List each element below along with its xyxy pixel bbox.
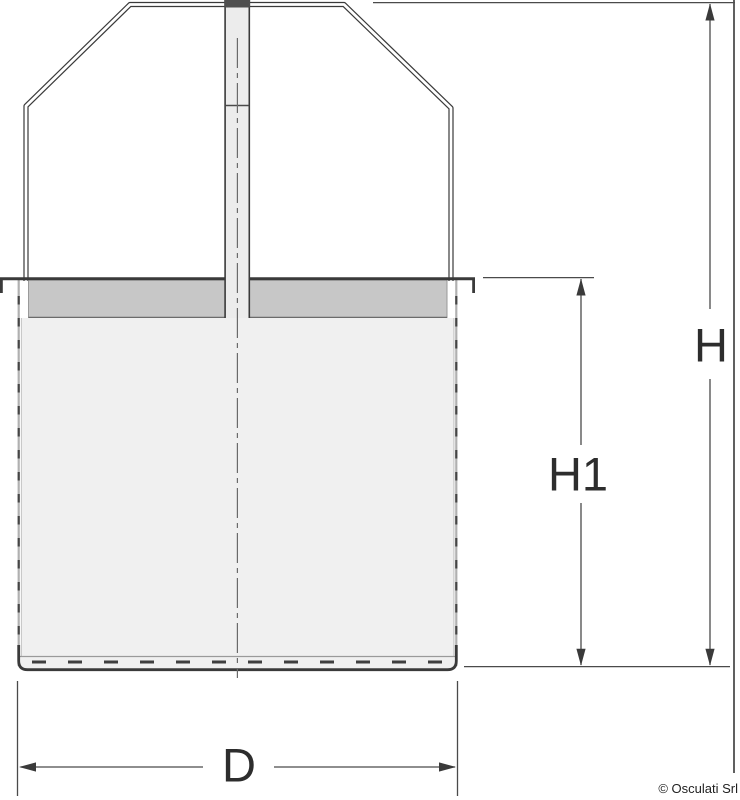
technical-drawing-chimney-cap: H H1 D © Osculati Srl bbox=[0, 0, 740, 800]
dimension-d-arrow-right bbox=[439, 762, 456, 771]
drawing-canvas bbox=[0, 0, 740, 800]
label-diameter: D bbox=[222, 742, 256, 789]
dimension-h-arrow-up bbox=[705, 4, 714, 21]
dimension-h-arrow-down bbox=[705, 649, 714, 666]
dimension-h1-arrow-up bbox=[576, 279, 585, 296]
dimension-d-arrow-left bbox=[19, 762, 36, 771]
label-overall-height: H bbox=[694, 322, 728, 369]
label-body-height: H1 bbox=[548, 451, 608, 498]
stem-cap bbox=[224, 0, 250, 8]
copyright-text: © Osculati Srl bbox=[658, 781, 738, 796]
dimension-h1-arrow-down bbox=[576, 649, 585, 666]
